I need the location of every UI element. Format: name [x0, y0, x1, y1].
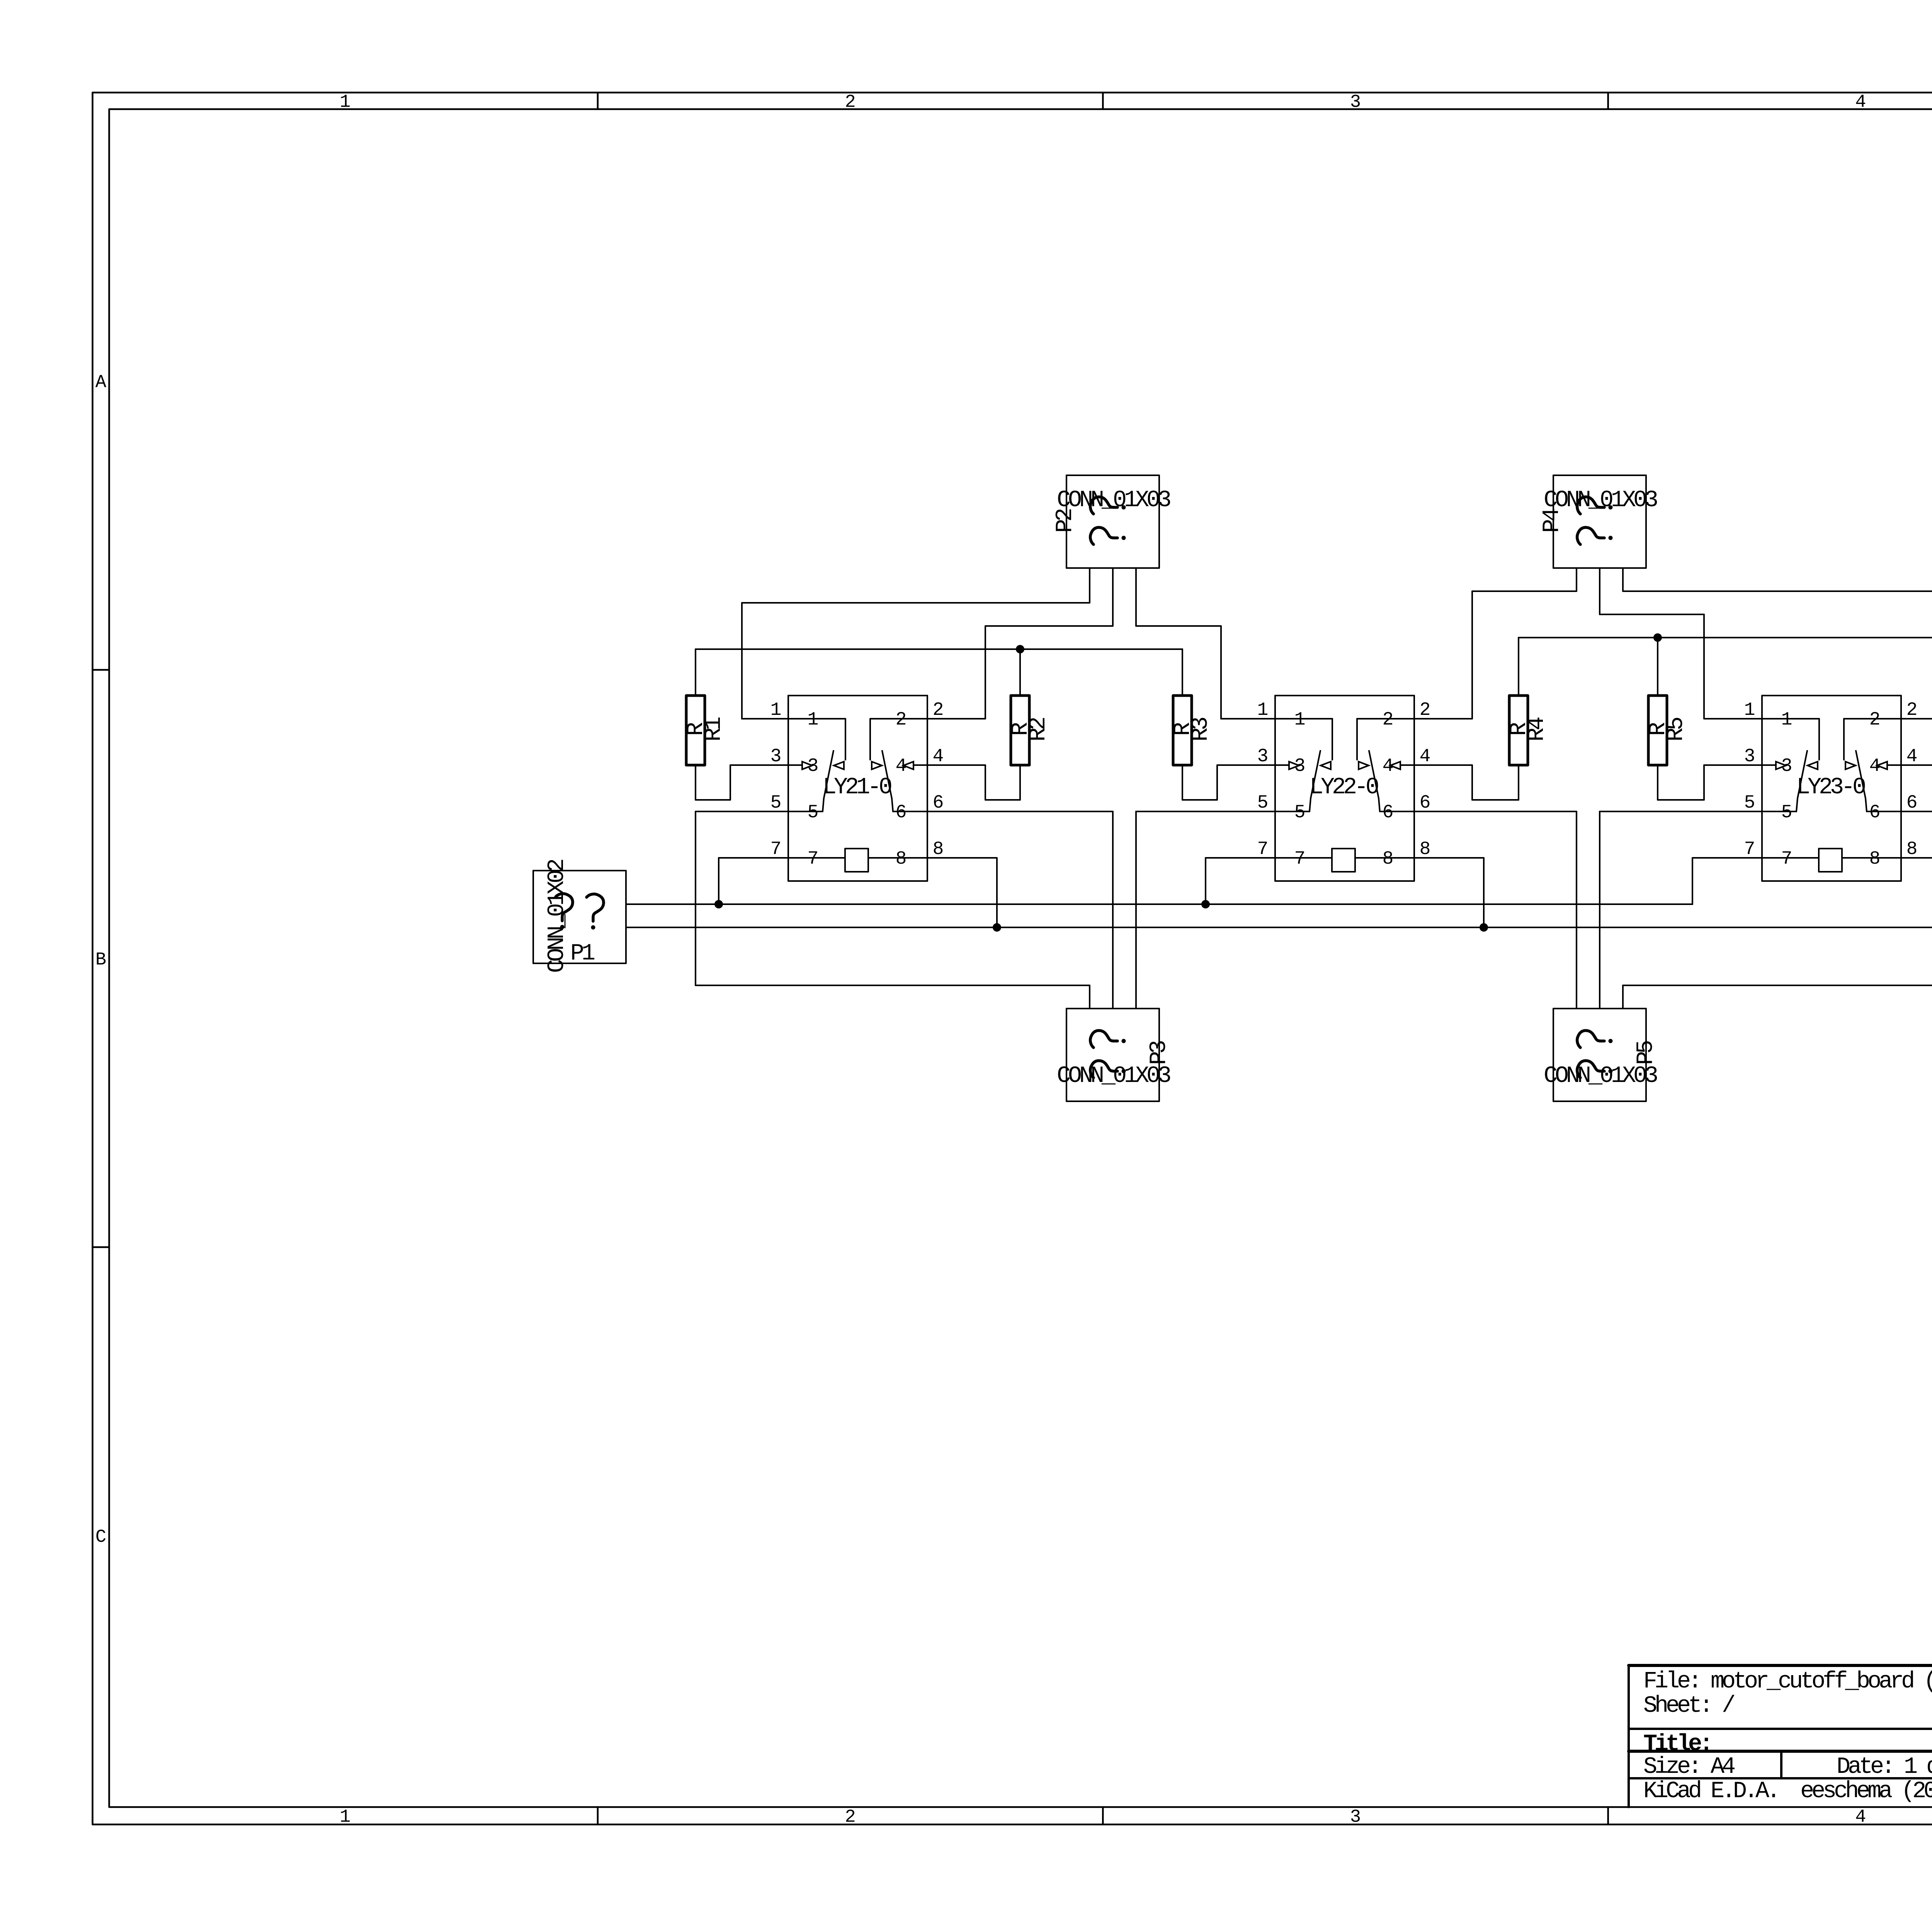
svg-text:LY23-0: LY23-0 — [1796, 774, 1865, 801]
svg-text:8: 8 — [1383, 849, 1394, 869]
svg-text:3: 3 — [1257, 746, 1269, 767]
svg-text:CONN_01X03: CONN_01X03 — [1544, 1063, 1657, 1089]
svg-text:R3: R3 — [1188, 718, 1214, 742]
svg-text:1: 1 — [1781, 709, 1793, 730]
svg-text:P4: P4 — [1539, 509, 1565, 533]
svg-text:CONN_01X03: CONN_01X03 — [1057, 487, 1170, 514]
svg-text:CONN_01X02: CONN_01X02 — [544, 860, 570, 973]
svg-text:LY21-0: LY21-0 — [823, 774, 891, 801]
svg-text:2: 2 — [896, 709, 907, 730]
svg-text:File: motor_cutoff_board (1).s: File: motor_cutoff_board (1).sch — [1643, 1669, 1932, 1695]
svg-text:2: 2 — [845, 92, 855, 113]
svg-text:3: 3 — [1294, 756, 1306, 777]
svg-text:Size: A4: Size: A4 — [1643, 1754, 1735, 1780]
svg-text:R2: R2 — [1026, 718, 1052, 742]
svg-text:2: 2 — [1420, 700, 1431, 721]
svg-text:1: 1 — [770, 700, 782, 721]
svg-text:1: 1 — [808, 709, 819, 730]
svg-text:6: 6 — [1869, 802, 1881, 823]
svg-text:2: 2 — [1869, 709, 1881, 730]
svg-text:6: 6 — [1420, 793, 1431, 813]
svg-text:6: 6 — [1383, 802, 1394, 823]
svg-text:5: 5 — [770, 793, 782, 813]
svg-text:3: 3 — [1781, 756, 1793, 777]
svg-text:6: 6 — [1906, 793, 1918, 813]
svg-text:2: 2 — [933, 700, 944, 721]
svg-text:5: 5 — [1294, 802, 1306, 823]
svg-text:A: A — [95, 373, 107, 393]
svg-text:Sheet: /: Sheet: / — [1643, 1693, 1735, 1719]
svg-text:1: 1 — [340, 92, 350, 113]
svg-text:4: 4 — [896, 756, 907, 777]
svg-text:R5: R5 — [1663, 718, 1689, 742]
svg-text:R4: R4 — [1524, 718, 1550, 742]
svg-text:8: 8 — [1906, 839, 1918, 860]
svg-text:P2: P2 — [1052, 509, 1078, 533]
svg-text:6: 6 — [933, 793, 944, 813]
svg-text:1: 1 — [1257, 700, 1269, 721]
svg-text:4: 4 — [1855, 1807, 1866, 1828]
svg-text:P1: P1 — [570, 941, 595, 967]
svg-text:1: 1 — [340, 1807, 350, 1828]
svg-text:5: 5 — [1257, 793, 1269, 813]
svg-text:R1: R1 — [701, 717, 727, 742]
svg-text:2: 2 — [1906, 700, 1918, 721]
svg-text:5: 5 — [1744, 793, 1755, 813]
svg-text:8: 8 — [1420, 839, 1431, 860]
svg-text:B: B — [95, 950, 106, 970]
svg-text:Date: 1 dec 2019: Date: 1 dec 2019 — [1837, 1754, 1932, 1780]
svg-text:7: 7 — [770, 839, 782, 860]
svg-text:CONN_01X03: CONN_01X03 — [1544, 487, 1657, 514]
svg-text:4: 4 — [1383, 756, 1394, 777]
svg-text:7: 7 — [1294, 849, 1306, 869]
svg-text:2: 2 — [845, 1807, 855, 1828]
svg-text:CONN_01X03: CONN_01X03 — [1057, 1063, 1170, 1089]
svg-text:4: 4 — [1906, 746, 1918, 767]
svg-text:LY22-0: LY22-0 — [1310, 774, 1378, 801]
svg-text:KiCad E.D.A. eeschema (2012-j: KiCad E.D.A. eeschema (2012-jul-04-ja)-s… — [1643, 1778, 1932, 1805]
svg-text:3: 3 — [808, 756, 819, 777]
svg-text:3: 3 — [1744, 746, 1755, 767]
svg-text:8: 8 — [896, 849, 907, 869]
svg-text:3: 3 — [1350, 92, 1361, 113]
svg-text:Title:: Title: — [1643, 1731, 1711, 1757]
svg-text:1: 1 — [1744, 700, 1755, 721]
svg-text:2: 2 — [1383, 709, 1394, 730]
svg-text:5: 5 — [1781, 802, 1793, 823]
svg-text:P3: P3 — [1146, 1041, 1172, 1065]
svg-text:4: 4 — [933, 746, 944, 767]
svg-text:7: 7 — [1257, 839, 1269, 860]
svg-text:7: 7 — [1781, 849, 1793, 869]
svg-text:6: 6 — [896, 802, 907, 823]
svg-text:8: 8 — [933, 839, 944, 860]
svg-text:4: 4 — [1420, 746, 1431, 767]
svg-text:4: 4 — [1869, 756, 1881, 777]
svg-text:7: 7 — [1744, 839, 1755, 860]
svg-text:C: C — [95, 1527, 106, 1548]
svg-text:1: 1 — [1294, 709, 1306, 730]
svg-text:3: 3 — [770, 746, 782, 767]
svg-text:P5: P5 — [1633, 1041, 1659, 1065]
svg-text:4: 4 — [1855, 92, 1866, 113]
svg-text:3: 3 — [1350, 1807, 1361, 1828]
svg-text:7: 7 — [808, 849, 819, 869]
svg-text:5: 5 — [808, 802, 819, 823]
svg-text:8: 8 — [1869, 849, 1881, 869]
